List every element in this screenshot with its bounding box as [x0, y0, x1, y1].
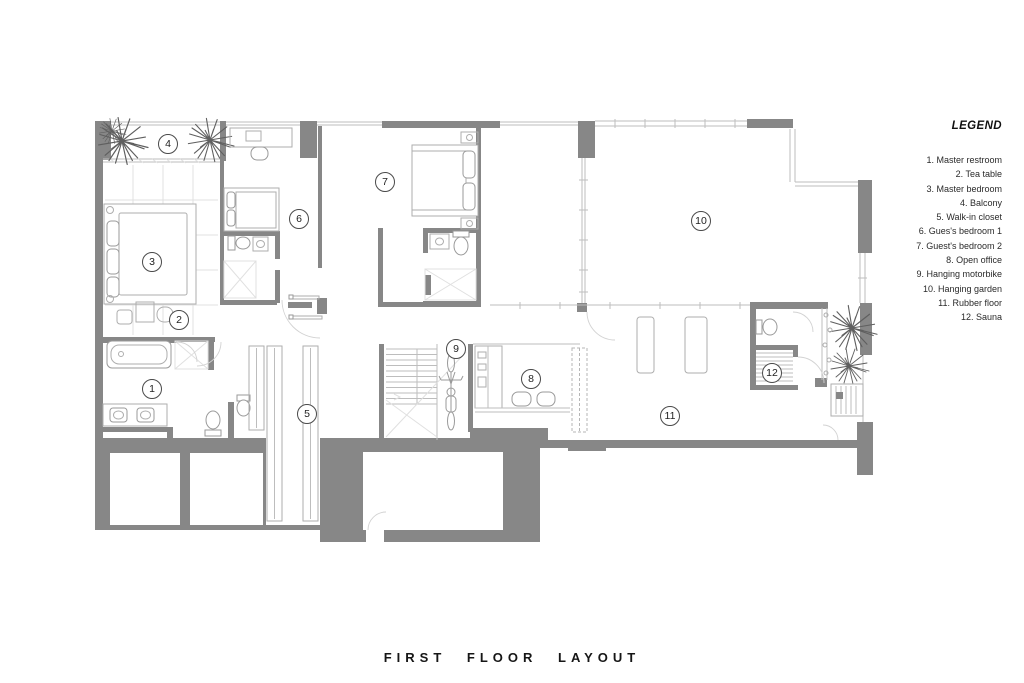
- room-marker-tea-table: 2: [169, 310, 189, 330]
- office-furniture: [475, 346, 587, 432]
- legend-item-9: 9. Hanging motorbike: [832, 267, 1002, 281]
- room-marker-open-office: 8: [521, 369, 541, 389]
- room-marker-hanging-motorbike: 9: [446, 339, 466, 359]
- legend-item-1: 1. Master restroom: [832, 153, 1002, 167]
- legend-item-3: 3. Master bedroom: [832, 182, 1002, 196]
- guest1-bathroom-fixtures: [224, 236, 268, 298]
- toilet-master: [205, 411, 221, 436]
- legend-item-6: 6. Gues's bedroom 1: [832, 224, 1002, 238]
- legend-item-8: 8. Open office: [832, 253, 1002, 267]
- legend-item-12: 12. Sauna: [832, 310, 1002, 324]
- page-title: FIRST FLOOR LAYOUT: [0, 650, 1024, 665]
- room-marker-sauna: 12: [762, 363, 782, 383]
- room-marker-rubber-floor: 11: [660, 406, 680, 426]
- shower-master: [175, 341, 208, 369]
- guest2-bed: [412, 132, 478, 229]
- exercise-mats: [637, 317, 707, 373]
- legend-item-2: 2. Tea table: [832, 167, 1002, 181]
- hanging-motorbike: [439, 354, 463, 430]
- guest2-bathroom-fixtures: [425, 231, 476, 300]
- floor-plan-drawing: [0, 0, 1024, 683]
- room-marker-hanging-garden: 10: [691, 211, 711, 231]
- floor-plan-page: 1 2 3 4 5 6 7 8 9 10 11 12 LEGEND 1. Mas…: [0, 0, 1024, 683]
- room-marker-guest-bedroom-1: 6: [289, 209, 309, 229]
- guest1-bed: [224, 188, 279, 231]
- legend-heading: LEGEND: [832, 120, 1002, 132]
- room-marker-master-bedroom: 3: [142, 252, 162, 272]
- toilet-sauna: [756, 319, 777, 335]
- legend-item-10: 10. Hanging garden: [832, 282, 1002, 296]
- bathtub: [107, 341, 171, 368]
- toilet-hall: [237, 395, 250, 416]
- guest1-desk: [230, 128, 292, 160]
- room-marker-balcony: 4: [158, 134, 178, 154]
- room-marker-walk-in-closet: 5: [297, 404, 317, 424]
- legend-item-5: 5. Walk-in closet: [832, 210, 1002, 224]
- legend-item-4: 4. Balcony: [832, 196, 1002, 210]
- legend-item-7: 7. Guest's bedroom 2: [832, 239, 1002, 253]
- legend: LEGEND 1. Master restroom 2. Tea table 3…: [832, 120, 1002, 325]
- room-marker-master-restroom: 1: [142, 379, 162, 399]
- outdoor-shower-tray: [831, 384, 863, 416]
- double-sink-counter: [103, 404, 167, 426]
- room-marker-guest-bedroom-2: 7: [375, 172, 395, 192]
- legend-item-11: 11. Rubber floor: [832, 296, 1002, 310]
